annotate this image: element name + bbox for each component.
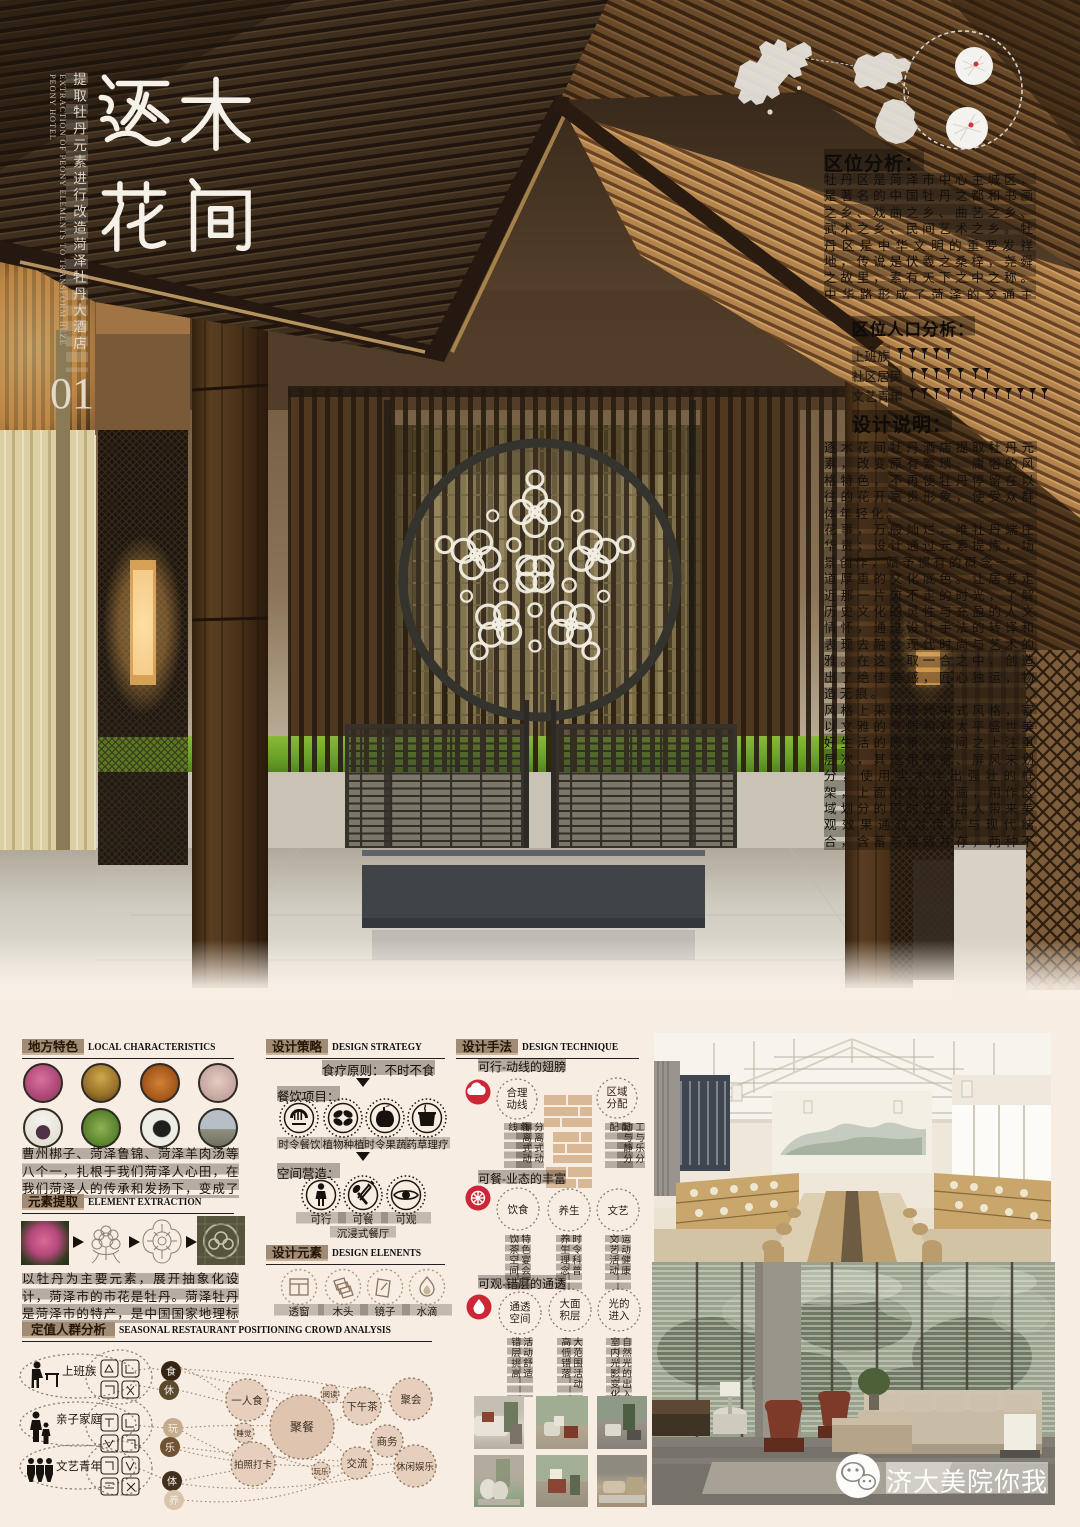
svg-text:合理: 合理 xyxy=(507,1086,528,1099)
svg-text:睡觉: 睡觉 xyxy=(237,1428,252,1438)
svg-text:上班族: 上班族 xyxy=(62,1364,97,1378)
svg-text:食: 食 xyxy=(166,1365,176,1378)
svg-text:养: 养 xyxy=(169,1494,179,1507)
svg-text:文艺青年: 文艺青年 xyxy=(56,1459,102,1473)
svg-text:文艺: 文艺 xyxy=(608,1204,629,1217)
svg-text:进入: 进入 xyxy=(609,1310,630,1322)
svg-text:阅读: 阅读 xyxy=(323,1389,338,1399)
svg-text:玩: 玩 xyxy=(168,1424,178,1435)
svg-text:亲子家庭: 亲子家庭 xyxy=(56,1412,102,1426)
svg-text:拍照打卡: 拍照打卡 xyxy=(234,1459,273,1471)
svg-text:养生: 养生 xyxy=(559,1204,580,1217)
svg-text:下午茶: 下午茶 xyxy=(346,1400,378,1413)
svg-text:分配: 分配 xyxy=(607,1098,628,1110)
svg-text:商务: 商务 xyxy=(377,1435,398,1448)
svg-text:积层: 积层 xyxy=(560,1310,581,1322)
svg-text:通透: 通透 xyxy=(510,1301,531,1313)
svg-text:休闲娱乐: 休闲娱乐 xyxy=(396,1461,435,1473)
svg-text:体: 体 xyxy=(167,1476,177,1488)
svg-text:一人食: 一人食 xyxy=(231,1394,263,1407)
svg-text:聚会: 聚会 xyxy=(401,1393,422,1406)
svg-text:乐: 乐 xyxy=(165,1442,175,1454)
svg-text:交流: 交流 xyxy=(347,1457,368,1470)
svg-text:动线: 动线 xyxy=(507,1098,528,1111)
svg-text:空间: 空间 xyxy=(510,1312,531,1325)
svg-text:光的: 光的 xyxy=(609,1297,630,1310)
svg-text:休: 休 xyxy=(164,1385,174,1397)
svg-text:饮食: 饮食 xyxy=(508,1203,529,1216)
svg-text:大面: 大面 xyxy=(560,1297,581,1310)
svg-text:玩乐: 玩乐 xyxy=(314,1466,329,1476)
svg-text:区域: 区域 xyxy=(607,1085,628,1098)
svg-text:聚餐: 聚餐 xyxy=(290,1419,314,1434)
